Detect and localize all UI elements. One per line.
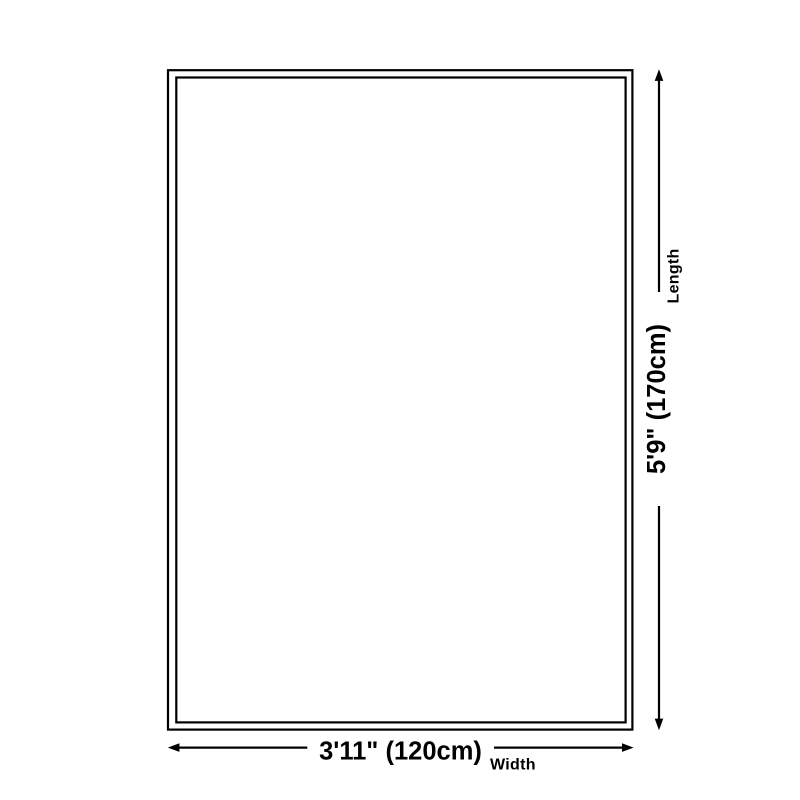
svg-text:3'11" (120cm): 3'11" (120cm) bbox=[319, 738, 482, 766]
svg-text:5'9" (170cm): 5'9" (170cm) bbox=[643, 324, 671, 474]
svg-text:Length: Length bbox=[665, 248, 682, 303]
svg-text:Width: Width bbox=[490, 757, 536, 774]
